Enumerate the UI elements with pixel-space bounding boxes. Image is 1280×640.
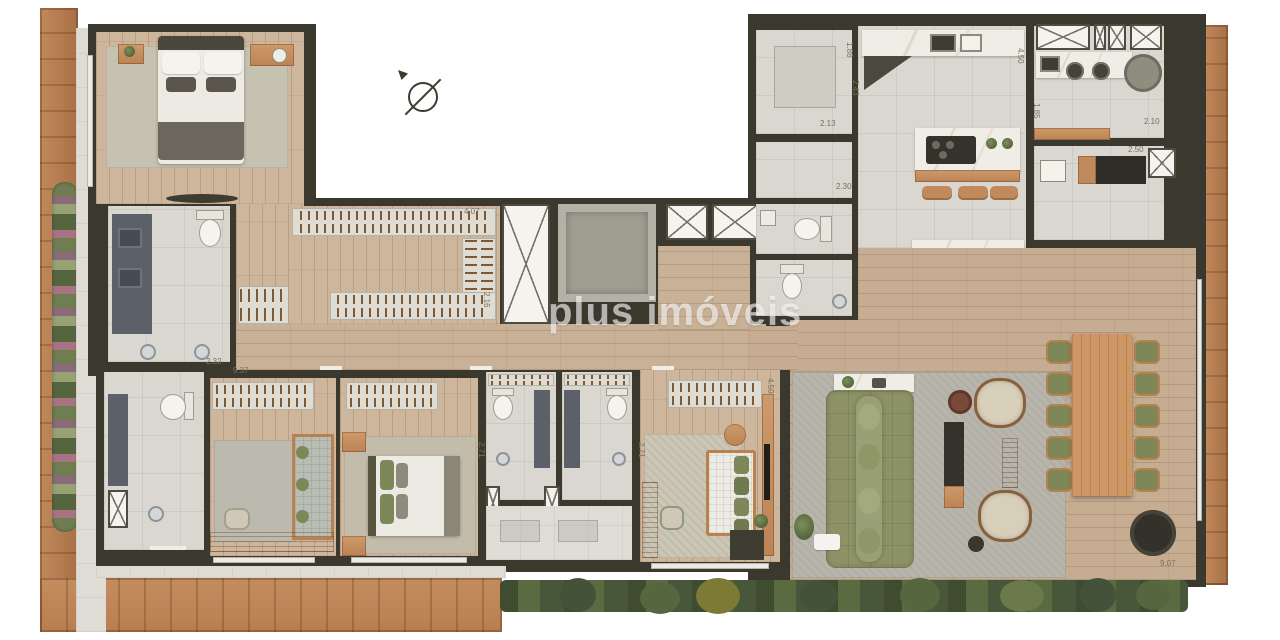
side-table — [948, 390, 972, 414]
toilet-tank — [820, 216, 832, 242]
bush — [1136, 580, 1170, 610]
side-table — [724, 424, 746, 446]
bed-pillow — [396, 494, 408, 519]
floor-mat — [730, 530, 764, 560]
sink — [118, 268, 142, 288]
door — [320, 366, 342, 370]
bush — [560, 578, 596, 612]
sink — [1040, 160, 1066, 182]
dimension-label: 4.50 — [766, 378, 774, 394]
bed-cushion — [206, 77, 236, 92]
window — [352, 558, 466, 562]
dimension-label: 4.50 — [1016, 48, 1024, 64]
wardrobe-rack — [668, 380, 762, 408]
fireplace-console — [944, 422, 964, 488]
washbasin — [760, 210, 776, 226]
fireplace-base — [944, 486, 964, 508]
vent-shaft — [1036, 24, 1090, 50]
table-clock — [272, 48, 287, 63]
dimension-label: 2.71 — [477, 442, 485, 458]
dimension-label: 2.50 — [1128, 146, 1144, 154]
dimension-label: 2.71 — [637, 442, 645, 458]
toilet — [199, 219, 221, 247]
toilet — [160, 394, 186, 420]
toilet — [493, 395, 513, 420]
floor-plan: 4.07 2.16 2.32 9.37 2.71 2.71 1.88 2.43 … — [0, 0, 1280, 640]
bed-pillow — [380, 460, 394, 490]
burner — [939, 151, 947, 159]
wardrobe-rack — [346, 382, 438, 410]
shower-door — [108, 490, 128, 528]
pillow — [296, 478, 309, 491]
dimension-label: 2.10 — [1144, 118, 1160, 126]
laundry-tub — [1124, 54, 1162, 92]
bed-bench — [166, 194, 238, 203]
bed-pillow — [734, 456, 749, 474]
sink — [960, 34, 982, 52]
bush — [1080, 578, 1116, 612]
decor-object — [872, 378, 886, 388]
stove — [1096, 156, 1146, 184]
ghost-table — [500, 520, 540, 542]
shower-head — [612, 452, 626, 466]
vent-shaft — [1148, 148, 1176, 178]
plant-pot — [1002, 138, 1013, 149]
bush — [640, 582, 680, 614]
sofa-cushion — [858, 488, 880, 514]
vent-shaft — [1108, 24, 1126, 50]
window — [652, 564, 768, 568]
wardrobe-rack — [462, 238, 496, 300]
dimension-label: 4.07 — [464, 208, 480, 216]
bed-blanket — [158, 122, 244, 160]
shaft — [502, 204, 550, 324]
floor-pot — [968, 536, 984, 552]
vanity — [534, 390, 550, 468]
vent-shaft — [1130, 24, 1162, 50]
dimension-label: 9.37 — [233, 367, 249, 375]
toilet — [607, 395, 627, 420]
sink — [118, 228, 142, 248]
desk — [210, 532, 334, 552]
ottoman — [1130, 510, 1176, 556]
dimension-label: 1.88 — [845, 42, 853, 58]
dining-chair — [1046, 340, 1072, 364]
pillow — [296, 446, 309, 459]
dining-table — [1072, 334, 1132, 496]
shaft — [712, 204, 758, 240]
bed-pillow — [734, 498, 749, 516]
bed-headboard — [158, 36, 244, 50]
magazine — [814, 534, 840, 550]
plant-pot — [842, 376, 854, 388]
window — [1198, 280, 1201, 520]
desk-chair — [224, 508, 250, 530]
dining-chair — [1046, 436, 1072, 460]
island-base — [915, 170, 1020, 182]
bush — [900, 578, 940, 612]
shower-head — [140, 344, 156, 360]
deck-bottom — [40, 578, 502, 632]
wardrobe-rack — [330, 292, 496, 320]
bush — [800, 580, 838, 612]
sofa-cushion — [858, 404, 880, 430]
bed-pillow — [734, 477, 749, 495]
dining-chair — [1134, 436, 1160, 460]
laundry-sink — [1040, 56, 1060, 72]
window — [214, 558, 314, 562]
toilet — [794, 218, 820, 240]
elevator-cab — [566, 212, 648, 294]
dimension-label: 2.13 — [820, 120, 836, 128]
bush-flowering — [696, 578, 740, 614]
bed-pillow — [162, 52, 200, 74]
door — [470, 366, 492, 370]
stool — [958, 186, 988, 200]
shower-head — [832, 294, 847, 309]
bed-cushion — [166, 77, 196, 92]
bush — [1000, 580, 1044, 612]
bed-blanket — [444, 456, 460, 536]
dining-chair — [1134, 340, 1160, 364]
flower-planter — [52, 182, 78, 532]
dimension-label: 2.30 — [836, 183, 852, 191]
dimension-label: 2.16 — [482, 292, 490, 308]
shelf — [1034, 128, 1110, 140]
shower-head — [148, 506, 164, 522]
north-arrow-head — [398, 70, 408, 80]
stool — [922, 186, 952, 200]
toiletry-shelf — [564, 374, 630, 386]
nightstand — [342, 536, 366, 556]
toiletry-shelf — [488, 374, 554, 386]
walkway-bottom — [96, 566, 506, 578]
plant-pot — [794, 514, 814, 540]
nightstand — [342, 432, 366, 452]
bed-headboard — [368, 456, 376, 536]
dining-chair — [1046, 372, 1072, 396]
pillow — [296, 510, 309, 523]
dining-chair — [1134, 404, 1160, 428]
dryer — [1092, 62, 1110, 80]
sink — [930, 34, 956, 52]
plant-pot — [124, 46, 135, 57]
washer — [1066, 62, 1084, 80]
dimension-label: 1.85 — [1032, 103, 1040, 119]
storage-shelf — [774, 46, 836, 108]
dimension-label: 2.43 — [851, 80, 859, 96]
door — [150, 546, 186, 550]
plant-pot — [986, 138, 997, 149]
dimension-label: 9.07 — [1160, 560, 1176, 568]
dining-chair — [1046, 404, 1072, 428]
vanity — [564, 390, 580, 468]
desk-chair — [660, 506, 684, 530]
dining-chair — [1046, 468, 1072, 492]
slat-bench — [1002, 438, 1018, 488]
tv — [764, 444, 770, 500]
watermark: plus imóveis — [548, 290, 802, 335]
bed-pillow — [204, 52, 242, 74]
dining-chair — [1134, 372, 1160, 396]
vent-shaft — [1094, 24, 1106, 50]
dining-chair — [1134, 468, 1160, 492]
counter-wood — [1078, 156, 1096, 184]
sofa-cushion — [858, 528, 880, 554]
wardrobe-rack — [212, 382, 314, 410]
bed-pillow — [380, 494, 394, 524]
plant-pot — [754, 514, 768, 528]
bed-pillow — [396, 463, 408, 488]
armchair — [974, 378, 1026, 428]
burner — [946, 141, 954, 149]
stool — [990, 186, 1018, 200]
ghost-table — [558, 520, 598, 542]
dimension-label: 2.32 — [206, 358, 222, 366]
vanity — [108, 394, 128, 486]
armchair — [978, 490, 1032, 542]
deck-right — [1204, 25, 1228, 585]
sofa-cushion — [858, 444, 880, 470]
shaft — [666, 204, 708, 240]
shower-head — [496, 452, 510, 466]
north-arrow-icon — [396, 66, 448, 118]
window — [88, 56, 92, 186]
desk — [642, 482, 658, 558]
burner — [932, 141, 940, 149]
living-room-floor — [858, 248, 1196, 320]
